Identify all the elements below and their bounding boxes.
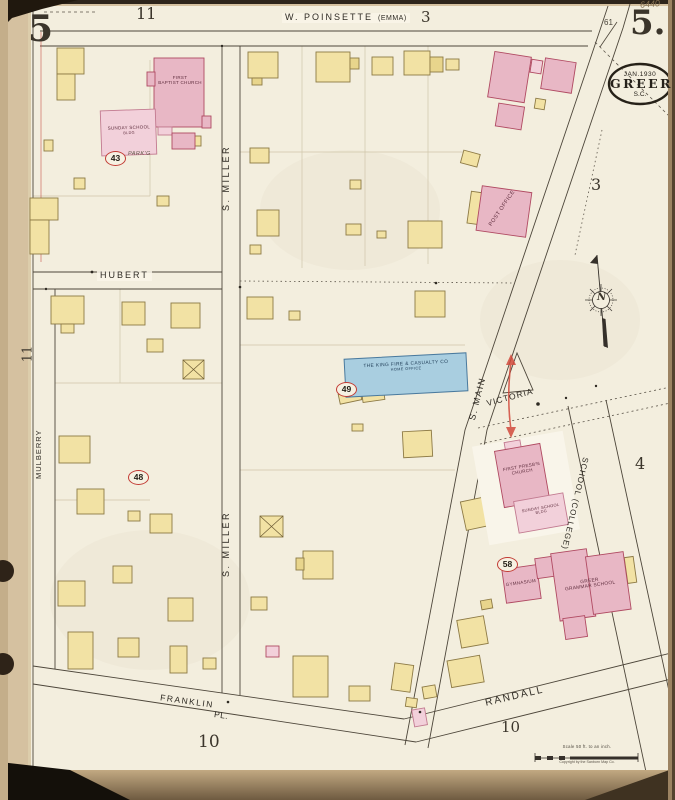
- sheet-number-left: 5: [28, 10, 53, 49]
- street-label-poinsette: W. POINSETTE(EMMA): [282, 13, 410, 23]
- sheet-number-right: 5.: [630, 5, 666, 42]
- street-name-poinsette: W. POINSETTE: [285, 12, 373, 22]
- baptist-church-label: FIRST BAPTIST CHURCH: [158, 76, 202, 86]
- block-number-10-bottom: 10: [198, 733, 220, 751]
- hole-punch-lower: [0, 653, 14, 675]
- lot-number-58: 58: [497, 557, 518, 572]
- stamp-state: S.C.: [610, 91, 670, 98]
- map-drawing: [0, 0, 675, 800]
- compass-north-label: N: [597, 293, 606, 304]
- street-altname-poinsette: (EMMA): [373, 15, 407, 22]
- hole-punch-upper: [0, 560, 14, 582]
- lot-number-49: 49: [336, 382, 357, 397]
- street-label-miller-upper: S. MILLER: [222, 132, 232, 224]
- copyright-text: Copyright by the Sanborn Map Co.: [543, 761, 631, 765]
- block-number-10-right: 10: [501, 719, 520, 735]
- block-number-3-right: 3: [591, 176, 601, 193]
- baptist-church-label-line2: BAPTIST CHURCH: [158, 81, 202, 86]
- street-label-miller-lower: S. MILLER: [222, 498, 232, 590]
- street-label-franklin-pl: PL.: [213, 710, 228, 721]
- lot-number-48: 48: [128, 470, 149, 485]
- scale-text: Scale 50 ft. to an inch.: [545, 745, 629, 750]
- lot-number-43: 43: [105, 151, 126, 166]
- plate-ref: 61: [604, 19, 613, 28]
- block-number-11-left: 11: [21, 346, 35, 363]
- block-number-4-right: 4: [635, 455, 645, 472]
- sanborn-map-photo: 5 11 W. POINSETTE(EMMA) 3 61 5. 6440 JAN…: [0, 0, 675, 800]
- baptist-sunday-school-label: SUNDAY SCHOOL BLDG: [104, 125, 154, 136]
- parking-label: PARK'G: [128, 152, 151, 158]
- street-label-hubert: HUBERT: [97, 271, 152, 281]
- street-label-mulberry: MULBERRY: [35, 424, 43, 484]
- stamp-city: GREER: [610, 77, 670, 91]
- block-number-11-top: 11: [136, 5, 156, 22]
- handwritten-note: 6440: [640, 0, 661, 11]
- block-number-3-top: 3: [421, 9, 431, 25]
